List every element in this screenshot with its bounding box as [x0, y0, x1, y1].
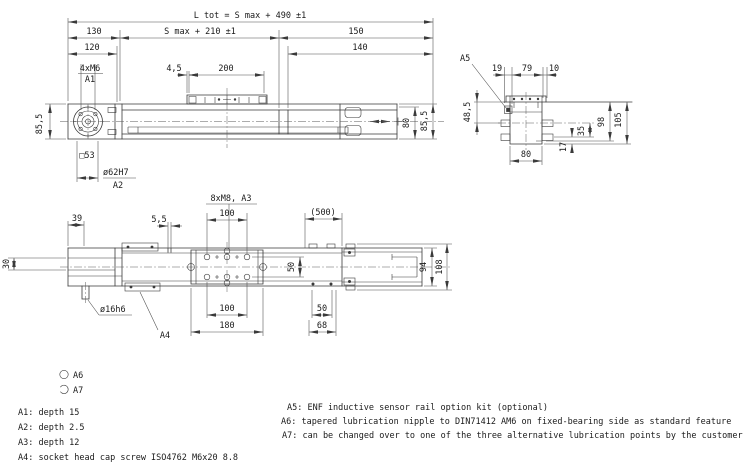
- label-4xm6: 4xM6: [80, 64, 100, 74]
- note-a4: A4: socket head cap screw ISO4762 M6x20 …: [18, 453, 238, 463]
- note-a7: A7: can be changed over to one of the th…: [282, 431, 743, 441]
- dim-130: 130: [86, 27, 101, 37]
- dim-150: 150: [348, 27, 363, 37]
- lubrication-stud: [501, 134, 510, 141]
- dim-85-5-right: 85,5: [420, 111, 430, 131]
- dim-140: 140: [352, 43, 367, 53]
- dim-17: 17: [559, 142, 569, 152]
- dim-s-max: S max + 210 ±1: [164, 27, 236, 37]
- dim-98: 98: [597, 117, 607, 127]
- dim-105: 105: [614, 112, 624, 127]
- dim-48-5: 48,5: [463, 102, 473, 122]
- dim-30: 30: [2, 259, 12, 269]
- label-a4: A4: [160, 331, 170, 341]
- note-a1: A1: depth 15: [18, 408, 79, 418]
- dim-39: 39: [72, 214, 82, 224]
- dim-68: 68: [317, 321, 327, 331]
- note-a3: A3: depth 12: [18, 438, 79, 448]
- dim-100-top: 100: [219, 209, 234, 219]
- dim-180: 180: [219, 321, 234, 331]
- notes-left: A1: depth 15 A2: depth 2.5 A3: depth 12 …: [18, 408, 238, 463]
- plan-view-geometry: [68, 243, 422, 299]
- dim-19: 19: [492, 64, 502, 74]
- legend-a6-label: A6: [73, 371, 83, 381]
- dim-50-right: 50: [317, 304, 327, 314]
- technical-drawing-page: L tot = S max + 490 ±1 130 S max + 210 ±…: [0, 0, 750, 470]
- dim-35: 35: [577, 126, 587, 136]
- dim-50-mid: 50: [287, 262, 297, 272]
- notes-right: A5: ENF inductive sensor rail option kit…: [281, 403, 743, 441]
- dim-4-5: 4,5: [166, 64, 181, 74]
- side-elevation-view: L tot = S max + 490 ±1 130 S max + 210 ±…: [35, 11, 444, 191]
- linear-unit-dimension-drawing: L tot = S max + 490 ±1 130 S max + 210 ±…: [0, 0, 750, 470]
- dim-85-5-left: 85,5: [35, 114, 45, 134]
- label-a2: A2: [113, 181, 123, 191]
- plan-view: 39 5,5 8xM8, A3 100 (500) 30 50 94 108 ø…: [2, 194, 452, 341]
- dim-square-53: □53: [79, 151, 94, 161]
- note-a2: A2: depth 2.5: [18, 423, 85, 433]
- dim-10: 10: [549, 64, 559, 74]
- legend-a7-label: A7: [73, 386, 83, 396]
- note-a6: A6: tapered lubrication nipple to DIN714…: [281, 417, 731, 427]
- end-block-tab: [345, 108, 361, 118]
- dim-94: 94: [419, 262, 429, 272]
- dim-200: 200: [218, 64, 233, 74]
- end-view-dimensions: [474, 67, 631, 165]
- label-a5: A5: [460, 54, 470, 64]
- dim-500-ref: (500): [310, 208, 336, 218]
- dim-80-end-view: 80: [521, 150, 531, 160]
- dim-108: 108: [435, 259, 445, 274]
- end-view: A5 19 79 10 48,5 98 105 35 17 80: [460, 54, 632, 165]
- dim-100-bottom: 100: [219, 304, 234, 314]
- dim-80-right: 80: [402, 118, 412, 128]
- lubrication-stud: [542, 134, 553, 141]
- standard-lubrication-symbol: [60, 370, 68, 378]
- dim-dia-62h7: ø62H7: [103, 168, 129, 178]
- side-view-dimensions: [45, 18, 437, 182]
- dim-dia-16h6: ø16h6: [100, 305, 126, 315]
- centerline: [60, 242, 450, 303]
- legend: A6 A7: [60, 370, 83, 396]
- dim-79: 79: [522, 64, 532, 74]
- label-8xm8-a3: 8xM8, A3: [211, 194, 252, 204]
- side-view-geometry: [68, 95, 402, 139]
- centerline: [498, 92, 596, 150]
- dim-l-tot: L tot = S max + 490 ±1: [194, 11, 307, 21]
- note-a5: A5: ENF inductive sensor rail option kit…: [287, 403, 548, 413]
- dim-5-5: 5,5: [151, 215, 166, 225]
- dim-120: 120: [84, 43, 99, 53]
- alternative-lubrication-symbol: [60, 385, 68, 393]
- label-a1: A1: [85, 75, 95, 85]
